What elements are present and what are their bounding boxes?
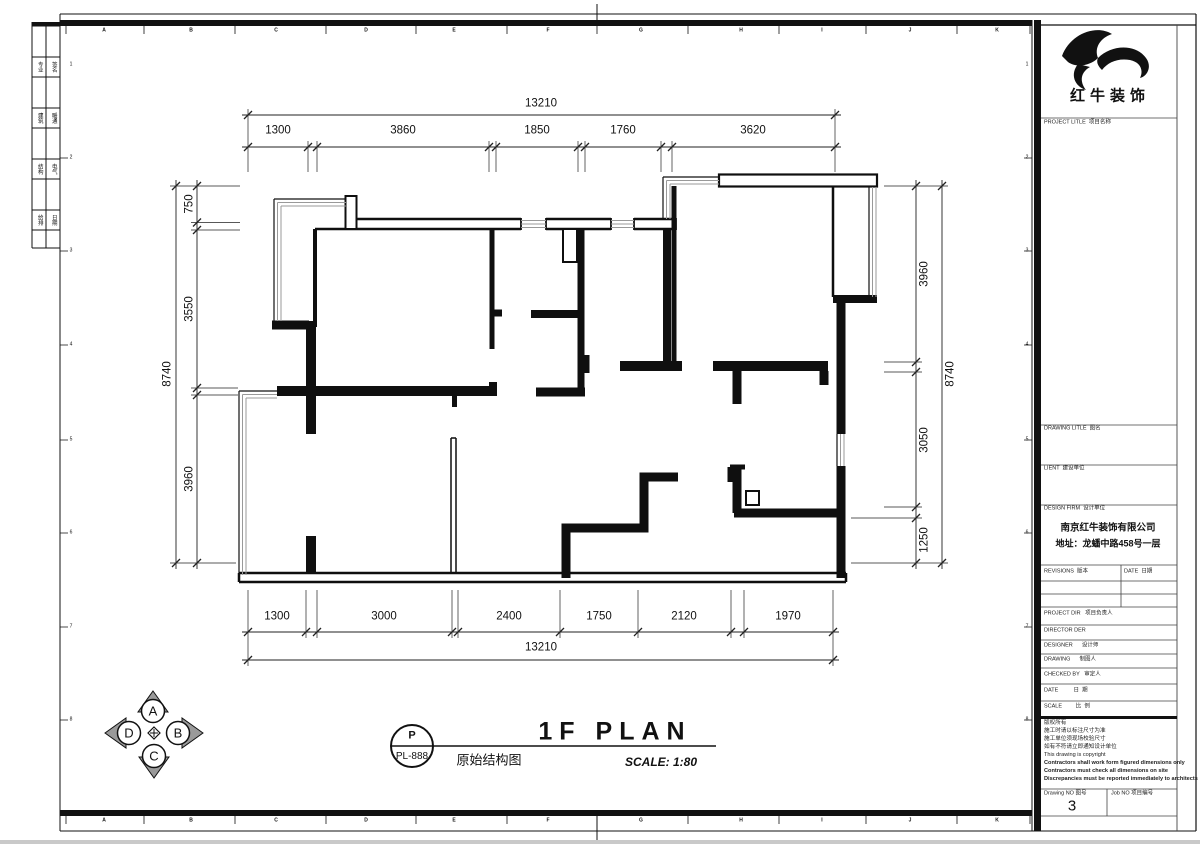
dim-left-seg: 3550: [184, 296, 196, 322]
zone-number: 2: [70, 156, 73, 161]
zone-number: 7: [1026, 625, 1029, 630]
dim-top-seg: 1760: [610, 125, 636, 137]
zone-number: 5: [70, 438, 73, 443]
strip-cell: 电气: [50, 164, 56, 175]
zone-number: 8: [1026, 718, 1029, 723]
zone-number: 6: [1026, 531, 1029, 536]
dim-bottom-seg: 1970: [775, 611, 801, 623]
dim-bottom-seg: 1750: [586, 611, 612, 623]
dim-bottom-seg: 2120: [671, 611, 697, 623]
ruler-letter: G: [639, 29, 643, 34]
ruler-letter: K: [995, 819, 999, 824]
plan-subtitle: 原始结构图: [456, 754, 521, 767]
design-firm-label: DESIGN FIRM 设计单位: [1044, 506, 1105, 512]
scale-row-label: SCALE 比 例: [1044, 704, 1090, 710]
plan-scale: SCALE: 1:80: [625, 756, 697, 768]
design-firm-address: 地址：龙蟠中路458号一层: [1055, 540, 1160, 549]
drawing-title-label: DRAWING LITLE 图名: [1044, 426, 1101, 432]
director-label: DIRECTOR DER: [1044, 628, 1086, 634]
copyright-note: 如有不符请立即通知设计单位: [1044, 745, 1117, 751]
copyright-note: Contractors must check all dimensions on…: [1044, 769, 1168, 775]
ruler-letter: D: [364, 819, 368, 824]
zone-number: 6: [70, 531, 73, 536]
dim-bottom-seg: 3000: [371, 611, 397, 623]
ruler-letter: B: [189, 819, 193, 824]
ruler-letter: A: [102, 819, 106, 824]
date-label: DATE 日期: [1124, 569, 1152, 575]
ruler-letter: B: [189, 29, 193, 34]
compass-letter-b: B: [174, 727, 183, 740]
zone-number: 3: [70, 249, 73, 254]
design-firm-name: 南京红牛装饰有限公司: [1060, 523, 1155, 533]
compass-letter-c: C: [149, 750, 158, 763]
dim-left-seg: 750: [184, 194, 196, 213]
ruler-letter: E: [452, 29, 455, 34]
dim-left-overall: 8740: [162, 361, 174, 387]
ruler-letter: H: [739, 29, 743, 34]
ruler-letter: F: [546, 819, 549, 824]
project-dir-label: PROJECT DIR 项目负责人: [1044, 611, 1113, 617]
strip-cell: 签名: [50, 62, 56, 73]
drawing-label: DRAWING 制图人: [1044, 657, 1096, 663]
zone-number: 7: [70, 625, 73, 630]
ruler-letter: F: [546, 29, 549, 34]
plan-bubble-code: PL-888: [396, 752, 428, 762]
drawing-no-value: 3: [1068, 799, 1076, 814]
drawing-no-label: Drawing NO 图号: [1044, 791, 1086, 797]
client-label: LIENT 建设单位: [1044, 466, 1085, 472]
ruler-letter: J: [909, 29, 912, 34]
zone-number: 2: [1026, 156, 1029, 161]
checked-by-label: CHECKED BY 审定人: [1044, 672, 1101, 678]
strip-cell: 专业: [36, 62, 42, 73]
dim-bottom-seg: 1300: [264, 611, 290, 623]
strip-cell: 给排: [36, 215, 42, 226]
brand-name: 红牛装饰: [1070, 89, 1150, 104]
ruler-letter: H: [739, 819, 743, 824]
copyright-note: Contractors shall work form figured dime…: [1044, 761, 1185, 767]
strip-cell: 日期: [50, 215, 56, 226]
job-no-label: Job NO 项目编号: [1111, 791, 1153, 797]
ruler-letter: C: [274, 29, 278, 34]
ruler-letter: G: [639, 819, 643, 824]
ruler-letter: I: [821, 29, 822, 34]
revisions-label: REVISIONS 版本: [1044, 569, 1088, 575]
copyright-note: 版权所有: [1044, 721, 1066, 727]
zone-number: 5: [1026, 438, 1029, 443]
compass-letter-a: A: [149, 705, 158, 718]
walls: [239, 175, 877, 583]
dim-top-seg: 1300: [265, 125, 291, 137]
ruler-letter: C: [274, 819, 278, 824]
plan-title: 1F PLAN: [538, 720, 691, 745]
brand-logo-icon: [1062, 30, 1149, 90]
copyright-note: 施工时请以标注尺寸为准: [1044, 729, 1106, 735]
zone-number: 3: [1026, 249, 1029, 254]
project-title-label: PROJECT LITLE 项目名称: [1044, 120, 1111, 126]
copyright-note: This drawing is copyright: [1044, 753, 1106, 759]
plan-bubble-letter: P: [408, 731, 415, 742]
copyright-note: Discrepancies must be reported immediate…: [1044, 777, 1198, 783]
dim-right-seg: 3960: [919, 261, 931, 287]
dim-top-seg: 3860: [390, 125, 416, 137]
ruler-letter: J: [909, 819, 912, 824]
compass-letter-d: D: [124, 727, 133, 740]
dim-right-seg: 1250: [919, 527, 931, 553]
zone-number: 8: [70, 718, 73, 723]
zone-number: 4: [70, 343, 73, 348]
dim-top-seg: 3620: [740, 125, 766, 137]
zone-number: 4: [1026, 343, 1029, 348]
date-row-label: DATE 日 期: [1044, 688, 1088, 694]
dim-left-seg: 3960: [184, 466, 196, 492]
strip-cell: 结构: [36, 164, 42, 175]
zone-number: 1: [1026, 63, 1029, 68]
dim-right-overall: 8740: [945, 361, 957, 387]
designer-label: DESIGNER 设计师: [1044, 643, 1098, 649]
ruler-letter: K: [995, 29, 999, 34]
dim-top-seg: 1850: [524, 125, 550, 137]
dim-bottom-overall: 13210: [525, 642, 557, 654]
dim-right-seg: 3050: [919, 427, 931, 453]
copyright-note: 施工单位须现场校验尺寸: [1044, 737, 1106, 743]
ruler-letter: I: [821, 819, 822, 824]
zone-number: 1: [70, 63, 73, 68]
ruler-letter: E: [452, 819, 455, 824]
ruler-letter: D: [364, 29, 368, 34]
ruler-letter: A: [102, 29, 106, 34]
dim-bottom-seg: 2400: [496, 611, 522, 623]
strip-cell: 建筑: [36, 113, 42, 124]
drawing-sheet: A B C D E F G H I J K A B C D E F G H I …: [0, 0, 1200, 844]
strip-cell: 暖通: [50, 113, 56, 124]
dim-top-overall: 13210: [525, 98, 557, 110]
